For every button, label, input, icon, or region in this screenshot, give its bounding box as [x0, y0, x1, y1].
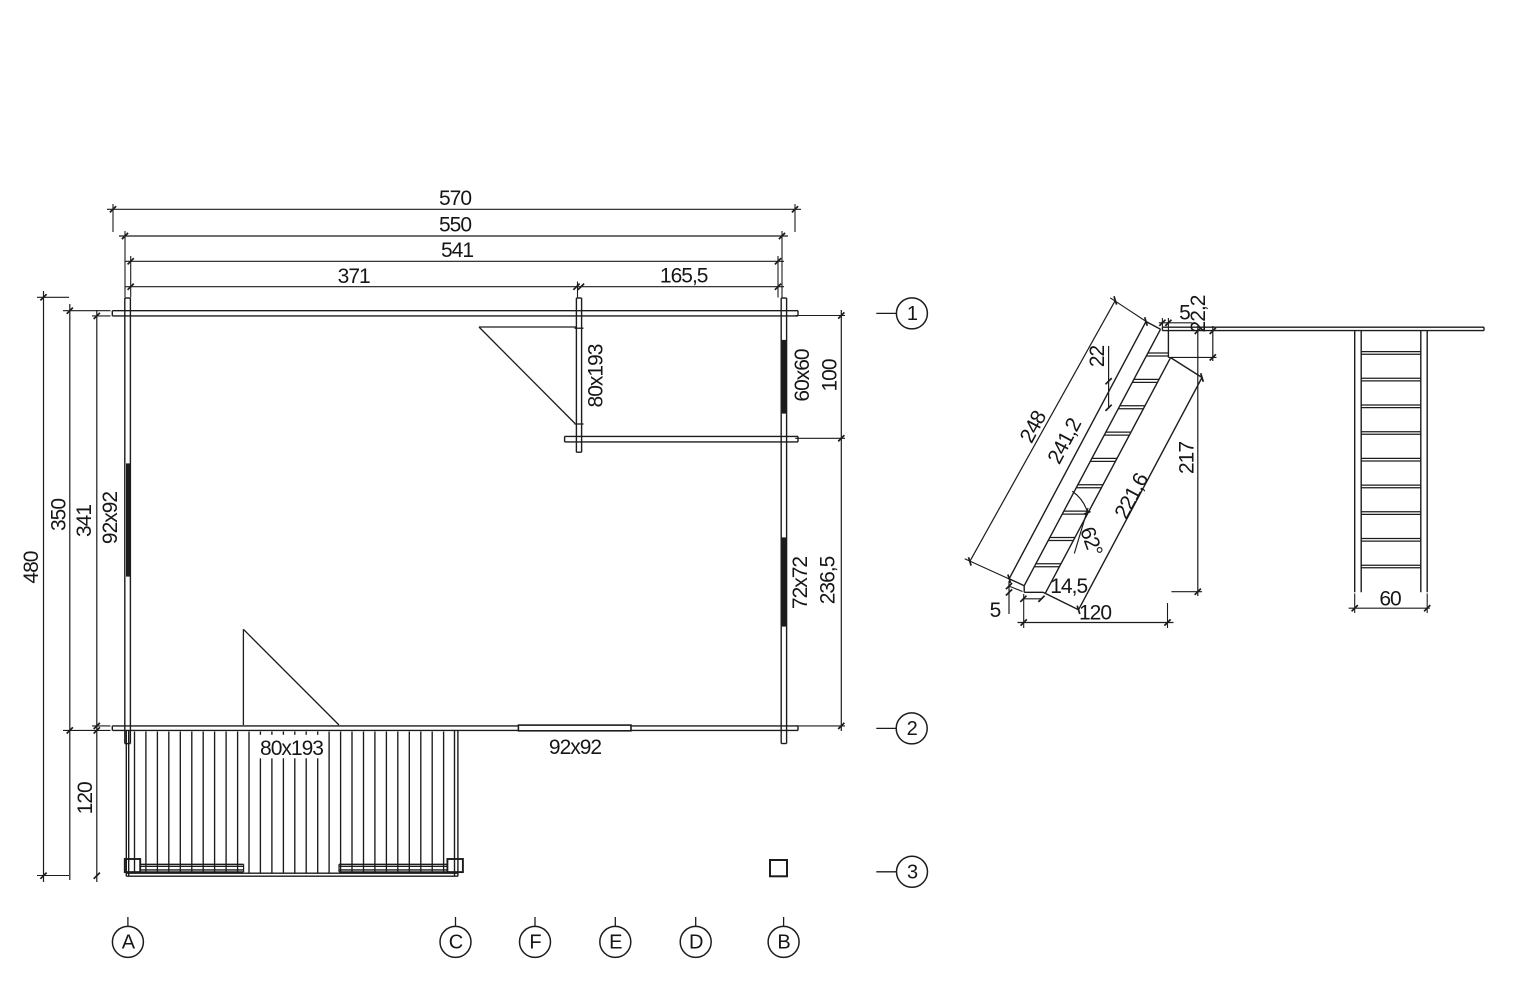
svg-text:480: 480	[20, 551, 43, 583]
svg-text:2: 2	[907, 718, 918, 740]
svg-text:100: 100	[819, 359, 842, 391]
svg-text:60x60: 60x60	[791, 349, 814, 402]
svg-text:3: 3	[907, 862, 918, 884]
svg-text:350: 350	[48, 499, 71, 531]
svg-text:217: 217	[1176, 442, 1199, 474]
svg-text:1: 1	[907, 303, 918, 325]
svg-text:60: 60	[1379, 588, 1401, 611]
svg-text:72x72: 72x72	[789, 557, 812, 610]
svg-text:80x193: 80x193	[585, 344, 608, 407]
svg-text:C: C	[449, 932, 463, 954]
svg-text:B: B	[777, 932, 790, 954]
svg-text:120: 120	[1079, 602, 1111, 625]
svg-text:371: 371	[338, 265, 370, 288]
svg-text:165,5: 165,5	[660, 265, 708, 288]
svg-text:570: 570	[439, 187, 471, 210]
svg-text:F: F	[529, 932, 541, 954]
svg-text:E: E	[609, 932, 622, 954]
svg-text:550: 550	[439, 214, 471, 237]
svg-text:92x92: 92x92	[549, 736, 602, 759]
svg-text:120: 120	[74, 782, 97, 814]
svg-text:22: 22	[1086, 346, 1109, 368]
svg-text:80x193: 80x193	[260, 737, 323, 760]
svg-text:92x92: 92x92	[99, 492, 122, 545]
svg-text:341: 341	[73, 505, 96, 537]
svg-text:14,5: 14,5	[1050, 575, 1087, 598]
svg-text:236,5: 236,5	[817, 556, 840, 604]
svg-text:541: 541	[441, 239, 473, 262]
svg-text:5: 5	[990, 599, 1001, 622]
svg-text:A: A	[122, 932, 136, 954]
svg-text:22,2: 22,2	[1187, 295, 1210, 332]
svg-text:D: D	[689, 932, 703, 954]
